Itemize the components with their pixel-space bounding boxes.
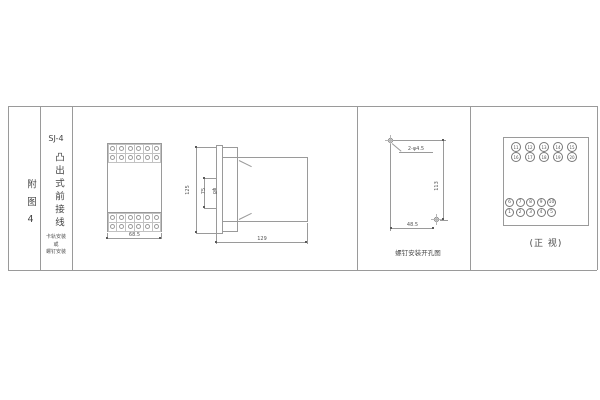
drill-height-dim-label: 113 — [434, 176, 440, 196]
terminal-number: 18 — [539, 152, 549, 162]
mounting-note-line: 卡轨安装 — [40, 234, 72, 242]
terminal-number: 15 — [567, 142, 577, 152]
terminal-screw-icon — [119, 215, 124, 220]
drill-diagram-caption: 螺钉安装开孔图 — [377, 247, 459, 257]
dim-ext-line — [204, 208, 216, 209]
hole-centerline — [436, 214, 437, 225]
terminal-number: 9 — [537, 198, 546, 207]
terminal-number: 17 — [525, 152, 535, 162]
dim-ext-line — [204, 178, 216, 179]
terminal-number: 13 — [539, 142, 549, 152]
dim-end-marker — [203, 206, 205, 208]
terminal-number: 7 — [516, 198, 525, 207]
model-label: SJ-4 — [40, 134, 72, 143]
figure-index-label: 附图4 — [23, 179, 37, 233]
terminal-row-11-15: 1112131415 — [511, 142, 581, 152]
terminal-row-16-20: 1617181920 — [511, 152, 581, 162]
table-border-right — [597, 106, 598, 270]
terminal-number: 11 — [511, 142, 521, 152]
dim-ext-line — [196, 147, 216, 148]
table-divider-2 — [72, 106, 73, 270]
terminal-screw-icon — [145, 155, 150, 160]
dim-line-height — [196, 147, 197, 233]
table-border-left — [8, 106, 9, 270]
dim-end-marker — [195, 231, 197, 233]
terminal-screw-icon — [110, 155, 115, 160]
terminal-screw-icon — [145, 215, 150, 220]
terminal-screw-icon — [128, 224, 133, 229]
terminal-number: 19 — [553, 152, 563, 162]
table-divider-3 — [357, 106, 358, 270]
table-border-top — [8, 106, 597, 107]
terminal-screw-icon — [145, 146, 150, 151]
terminal-number: 8 — [526, 198, 535, 207]
leader-underline — [399, 152, 433, 153]
mounting-note-line: 螺钉安装 — [40, 249, 72, 257]
terminal-screw-icon — [154, 155, 159, 160]
dim-line-depth — [216, 242, 308, 243]
side-screw-dim-label: φ8 — [211, 181, 217, 201]
table-border-bottom — [8, 270, 597, 271]
dim-line-vertical — [443, 140, 444, 220]
terminal-number: 4 — [537, 208, 546, 217]
terminal-screw-icon — [136, 155, 141, 160]
terminal-view-caption: (正 视) — [503, 236, 589, 249]
drawing-title-vertical: 凸出式前接线 — [51, 152, 65, 230]
terminal-number: 16 — [511, 152, 521, 162]
terminal-screw-icon — [110, 215, 115, 220]
table-divider-4 — [470, 106, 471, 270]
front-width-dim-label: 68.5 — [107, 232, 162, 238]
terminal-screw-icon — [154, 146, 159, 151]
terminal-number: 20 — [567, 152, 577, 162]
dim-end-marker — [442, 218, 444, 220]
mounting-note: 卡轨安装或螺钉安装 — [40, 234, 72, 257]
terminal-screw-icon — [128, 215, 133, 220]
side-view-step-top — [222, 147, 238, 158]
side-view-step-bottom — [222, 221, 238, 232]
terminal-screw-icon — [128, 155, 133, 160]
terminal-row-6-10: 678910 — [505, 198, 558, 207]
dim-ext-line — [196, 233, 216, 234]
terminal-number: 2 — [516, 208, 525, 217]
side-height-dim-label: 125 — [185, 180, 191, 200]
terminal-screw-icon — [145, 224, 150, 229]
drill-width-dim-label: 48.5 — [391, 222, 434, 228]
dim-ext-line — [393, 140, 446, 141]
terminal-screw-icon — [110, 224, 115, 229]
dim-end-marker — [195, 146, 197, 148]
terminal-screw-icon — [119, 146, 124, 151]
terminal-number: 1 — [505, 208, 514, 217]
terminal-screw-icon — [136, 224, 141, 229]
terminal-screw-icon — [128, 146, 133, 151]
dim-line-horizontal — [391, 228, 434, 229]
terminal-screw-icon — [119, 224, 124, 229]
terminal-screw-icon — [119, 155, 124, 160]
terminal-screw-icon — [154, 215, 159, 220]
dim-end-marker — [203, 177, 205, 179]
terminal-cell — [152, 153, 162, 163]
dim-ext-line — [440, 220, 448, 221]
side-depth-dim-label: 129 — [216, 236, 308, 242]
side-span-dim-label: 75 — [201, 181, 207, 201]
terminal-cell — [152, 222, 162, 232]
hole-spec-label: 2-φ4.5 — [399, 146, 433, 152]
dim-line-width — [107, 238, 162, 239]
mounting-note-line: 或 — [40, 242, 72, 250]
terminal-screw-icon — [154, 224, 159, 229]
technical-drawing-sheet: 附图4 SJ-4 凸出式前接线 卡轨安装或螺钉安装 68.5 125 — [0, 0, 600, 400]
terminal-number: 3 — [526, 208, 535, 217]
terminal-number: 12 — [525, 142, 535, 152]
front-view-terminal-strip-bottom — [107, 212, 162, 232]
terminal-number: 5 — [547, 208, 556, 217]
terminal-number: 10 — [547, 198, 556, 207]
dim-end-marker — [442, 139, 444, 141]
terminal-number: 6 — [505, 198, 514, 207]
terminal-screw-icon — [136, 146, 141, 151]
side-view-case — [237, 157, 308, 222]
terminal-row-1-5: 12345 — [505, 208, 558, 217]
front-view-terminal-strip-top — [107, 143, 162, 163]
dim-ext-line — [390, 144, 391, 231]
terminal-screw-icon — [136, 215, 141, 220]
terminal-screw-icon — [110, 146, 115, 151]
terminal-number: 14 — [553, 142, 563, 152]
